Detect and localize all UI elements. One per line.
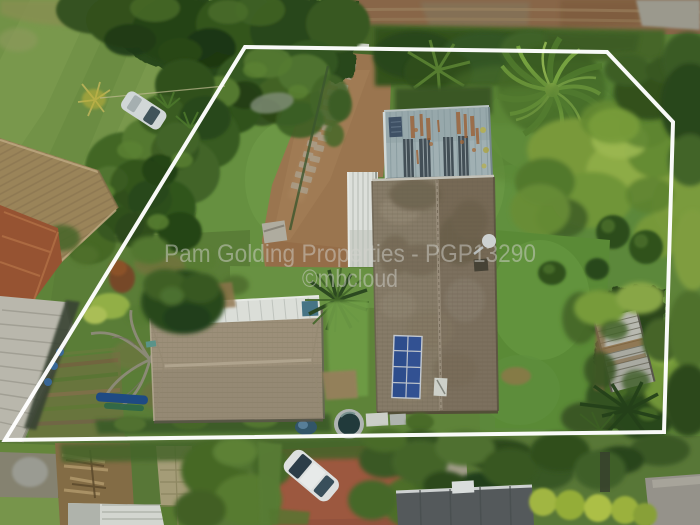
svg-text:Pam Golding Properties - PGP13: Pam Golding Properties - PGP13290 [164, 240, 536, 268]
svg-text:©mbcloud: ©mbcloud [302, 265, 398, 293]
